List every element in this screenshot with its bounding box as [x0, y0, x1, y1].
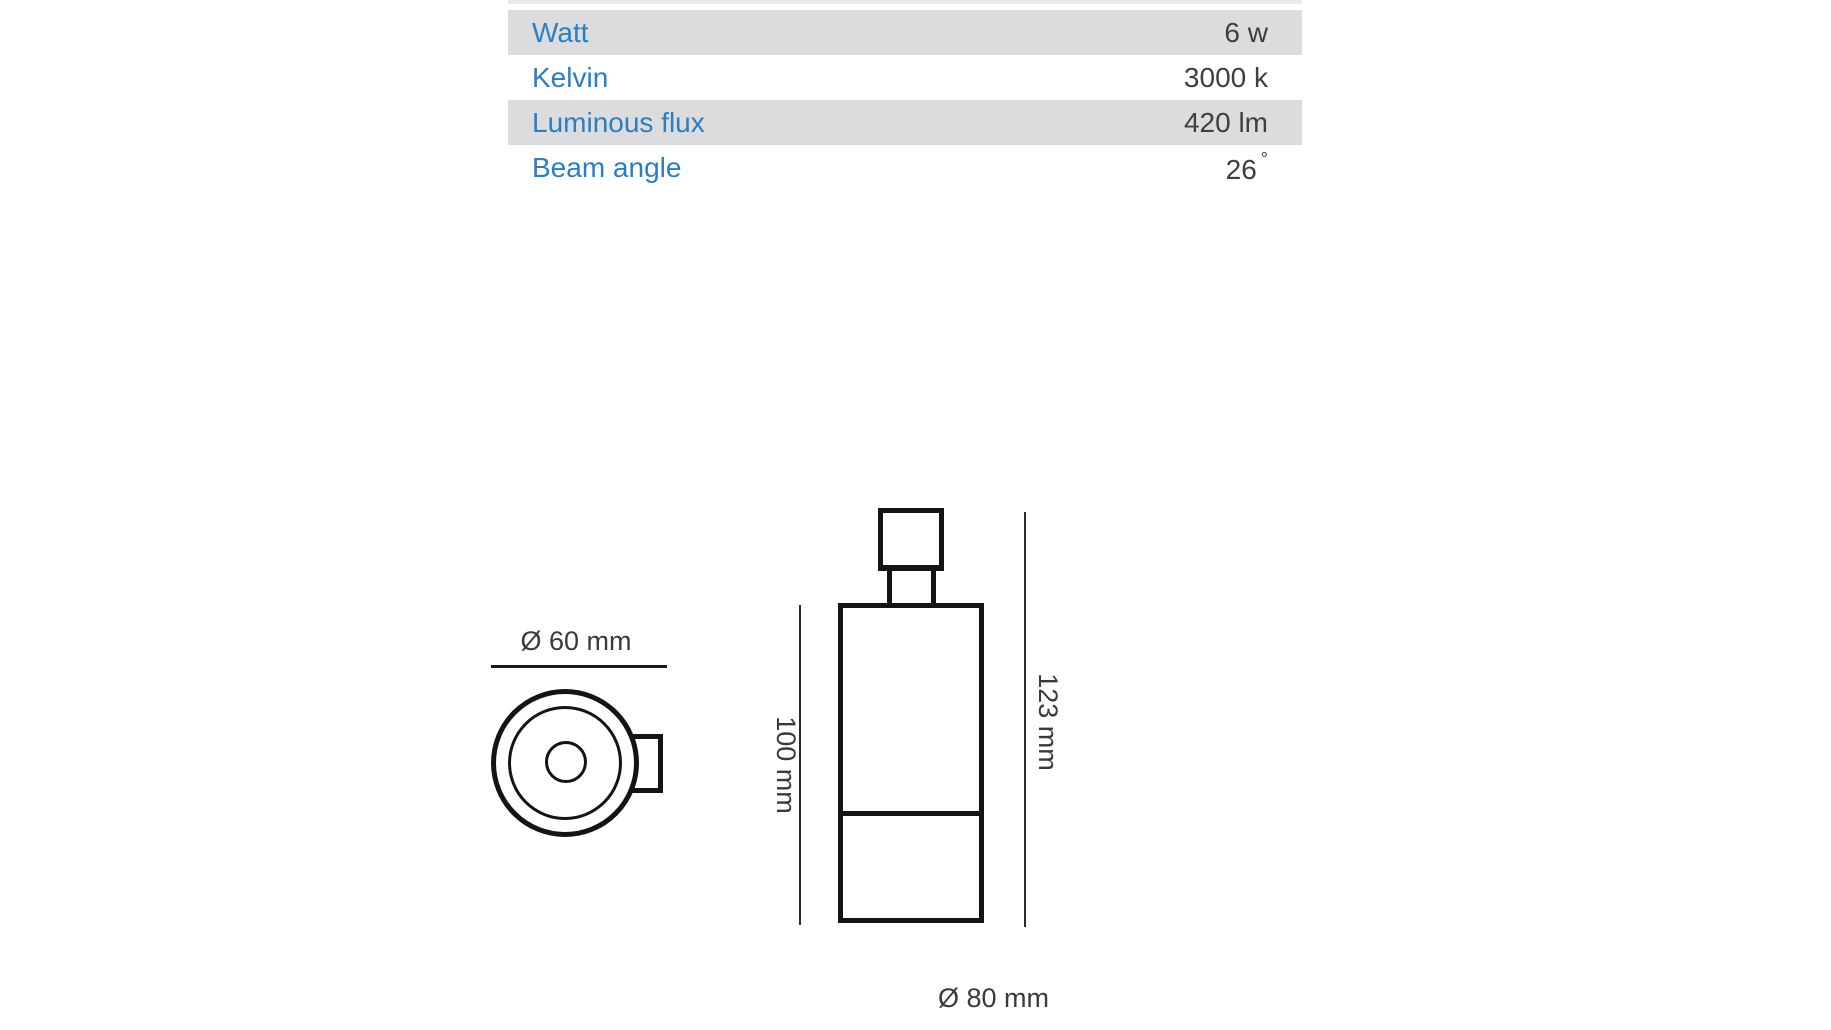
- side-view-body-divider: [838, 811, 984, 816]
- spec-value-kelvin: 3000 k: [1184, 62, 1302, 94]
- spec-label-beam-angle: Beam angle: [508, 152, 681, 184]
- spec-sheet-page: Watt 6 w Kelvin 3000 k Luminous flux 420…: [0, 0, 1831, 1030]
- spec-table: Watt 6 w Kelvin 3000 k Luminous flux 420…: [508, 10, 1302, 190]
- spec-label-kelvin: Kelvin: [508, 62, 608, 94]
- degree-symbol: °: [1261, 149, 1268, 169]
- spec-value-luminous-flux: 420 lm: [1184, 107, 1302, 139]
- dim-label-123mm: 123 mm: [1035, 667, 1063, 777]
- spec-label-luminous-flux: Luminous flux: [508, 107, 705, 139]
- table-row: Kelvin 3000 k: [508, 55, 1302, 100]
- side-view-body: [838, 603, 984, 923]
- table-row: Luminous flux 420 lm: [508, 100, 1302, 145]
- spec-value-beam-angle: 26°: [1226, 149, 1302, 186]
- table-top-sliver: [508, 0, 1302, 4]
- side-view-neck: [887, 571, 936, 604]
- top-view-diameter-label: Ø 60 mm: [496, 626, 656, 657]
- spec-label-watt: Watt: [508, 17, 589, 49]
- table-row: Beam angle 26°: [508, 145, 1302, 190]
- spec-value-watt: 6 w: [1224, 17, 1302, 49]
- dim-label-100mm: 100 mm: [773, 710, 801, 820]
- table-row: Watt 6 w: [508, 10, 1302, 55]
- side-view-adapter-square: [878, 508, 944, 571]
- dim-line-123mm: [1024, 512, 1026, 927]
- beam-angle-number: 26: [1226, 154, 1257, 185]
- top-view-diameter-line: [491, 665, 667, 668]
- top-view-lens-circle: [545, 741, 587, 783]
- side-view-diameter-label: Ø 80 mm: [938, 983, 1049, 1014]
